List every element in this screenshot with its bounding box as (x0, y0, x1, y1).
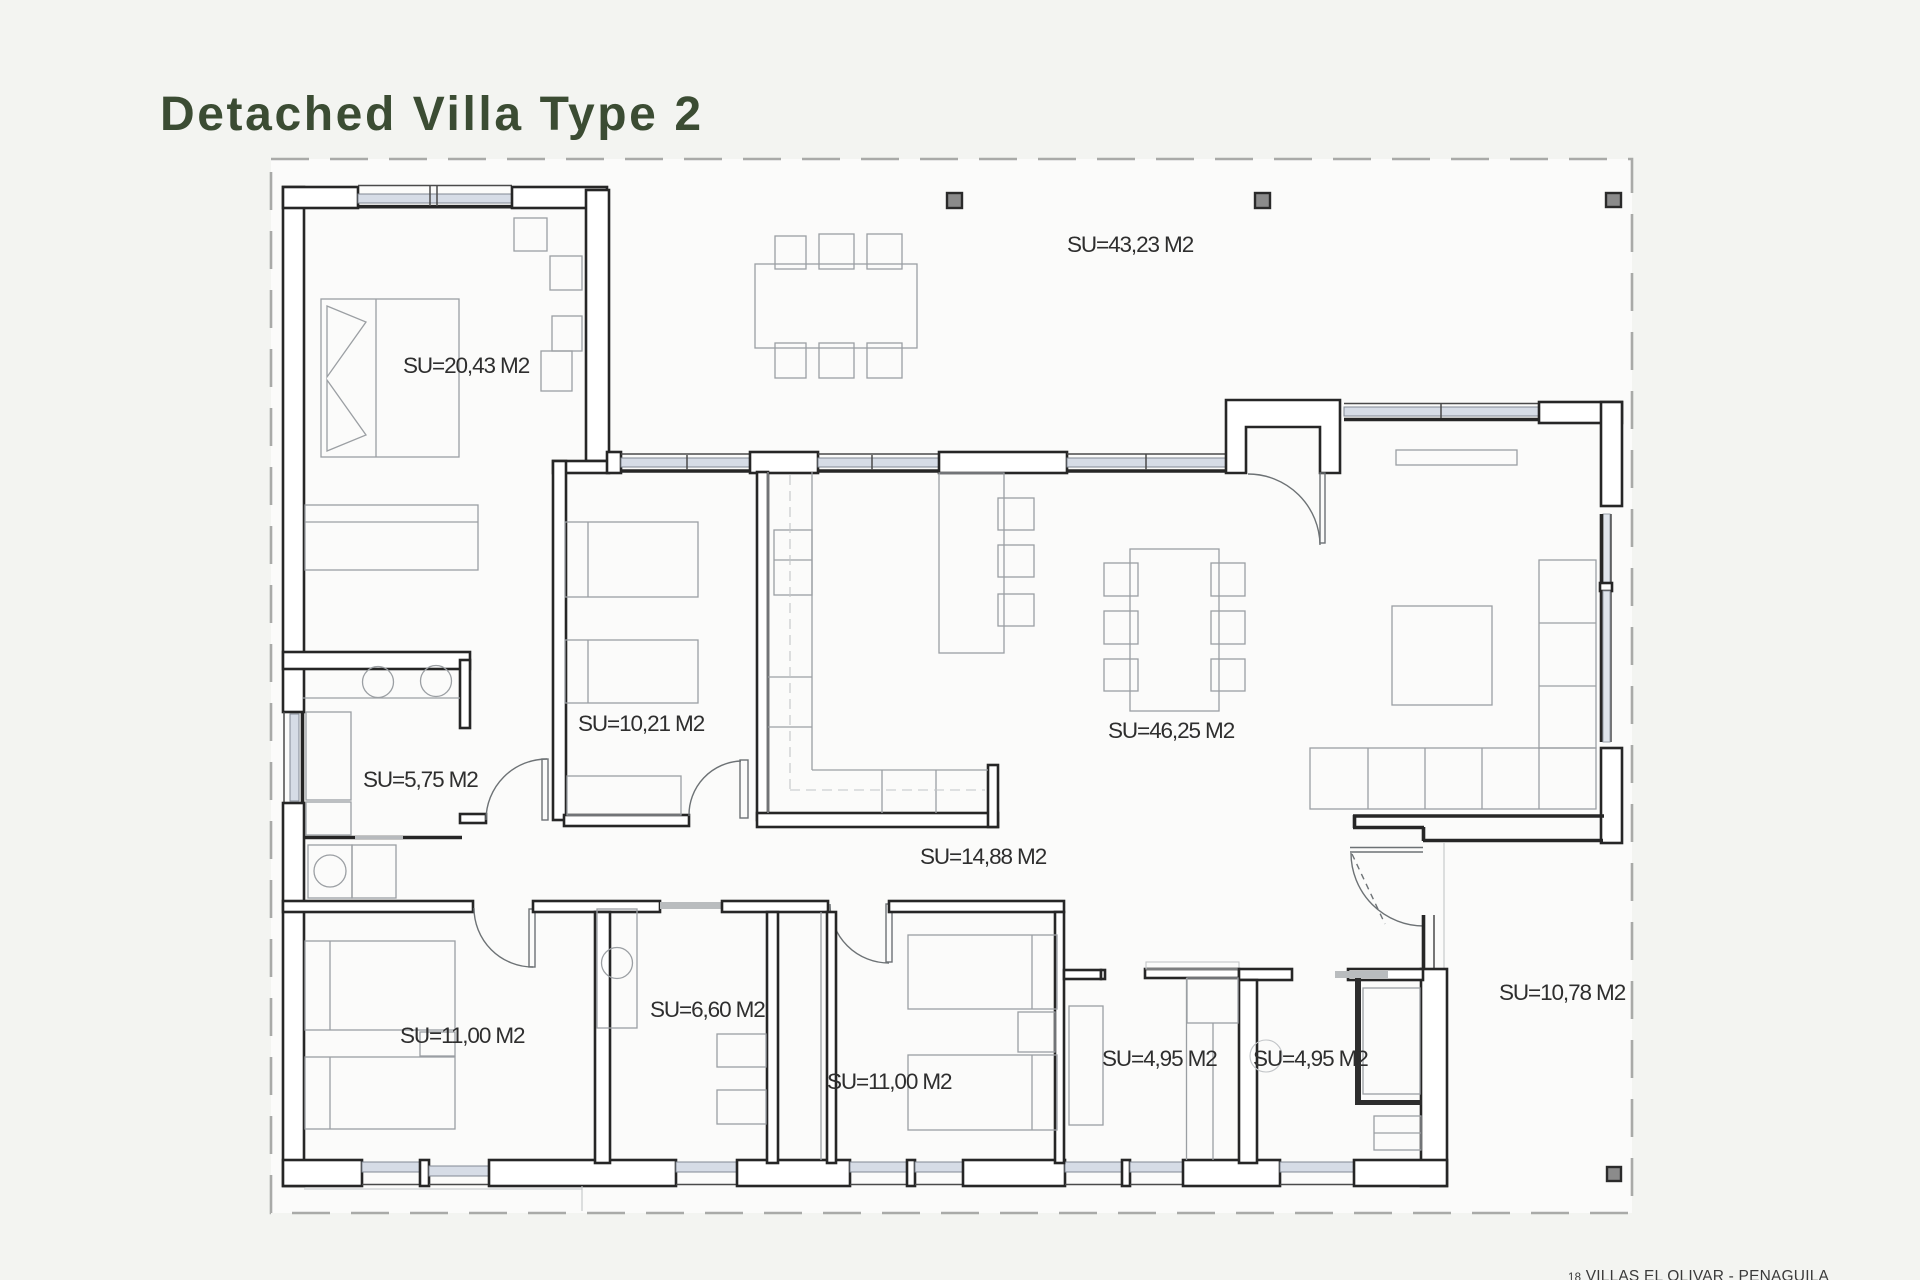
svg-text:SU=14,88 M2: SU=14,88 M2 (920, 844, 1047, 869)
svg-text:SU=5,75 M2: SU=5,75 M2 (363, 767, 478, 792)
svg-text:SU=11,00 M2: SU=11,00 M2 (827, 1069, 952, 1094)
svg-text:SU=46,25 M2: SU=46,25 M2 (1108, 718, 1235, 743)
svg-text:SU=4,95 M2: SU=4,95 M2 (1253, 1046, 1368, 1071)
svg-text:Detached Villa Type 2: Detached Villa Type 2 (160, 88, 704, 141)
svg-text:SU=11,00 M2: SU=11,00 M2 (400, 1023, 525, 1048)
svg-text:SU=20,43 M2: SU=20,43 M2 (403, 353, 530, 378)
svg-text:SU=4,95 M2: SU=4,95 M2 (1102, 1046, 1217, 1071)
svg-text:SU=10,21 M2: SU=10,21 M2 (578, 711, 705, 736)
svg-text:SU=10,78 M2: SU=10,78 M2 (1499, 980, 1626, 1005)
svg-text:SU=43,23 M2: SU=43,23 M2 (1067, 232, 1194, 257)
svg-text:SU=6,60 M2: SU=6,60 M2 (650, 997, 765, 1022)
svg-text:18 VILLAS EL OLIVAR - PENAGUI: 18 VILLAS EL OLIVAR - PENAGUILA (1568, 1268, 1830, 1280)
